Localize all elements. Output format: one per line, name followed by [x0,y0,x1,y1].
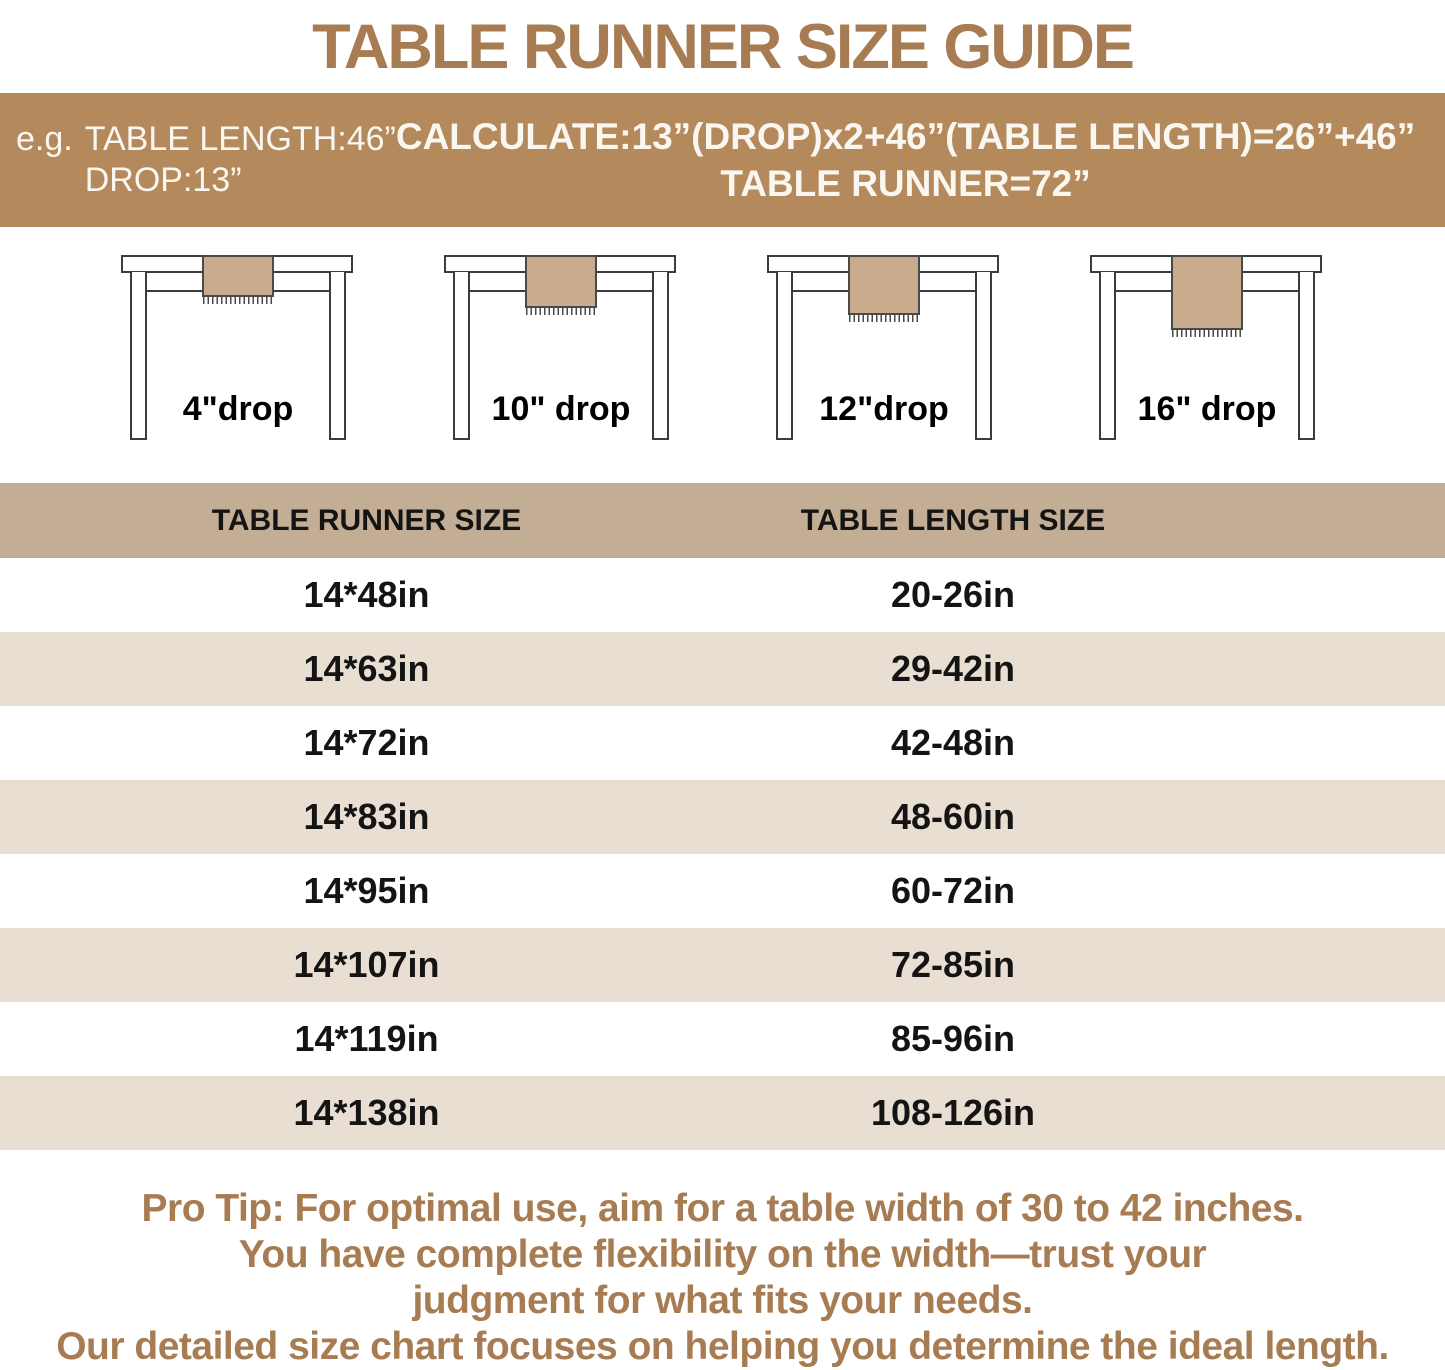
runner-size-cell: 14*83in [0,796,733,838]
table-runner-graphic [202,255,274,297]
pro-tip-line-4: Our detailed size chart focuses on helpi… [0,1324,1445,1370]
example-block: e.g. TABLE LENGTH:46” DROP:13” [16,119,396,201]
column-header-table-length: TABLE LENGTH SIZE [733,504,1173,538]
runner-size-cell: 14*63in [0,648,733,690]
table-runner-graphic [525,255,597,308]
example-table-length: TABLE LENGTH:46” [85,119,396,160]
table-diagram-10in-drop: 10" drop [444,240,678,483]
pro-tip-text: Pro Tip: For optimal use, aim for a tabl… [0,1186,1445,1370]
drop-diagrams: 4"drop 10" drop 12"drop 16" drop [0,240,1445,483]
table-length-cell: 85-96in [733,1018,1173,1060]
pro-tip-line-1: Pro Tip: For optimal use, aim for a tabl… [0,1186,1445,1232]
table-diagram-16in-drop: 16" drop [1090,240,1324,483]
runner-size-cell: 14*107in [0,944,733,986]
table-runner-graphic [1171,255,1243,330]
table-length-cell: 60-72in [733,870,1173,912]
table-length-cell: 108-126in [733,1092,1173,1134]
runner-size-cell: 14*138in [0,1092,733,1134]
table-row: 14*63in 29-42in [0,632,1445,706]
pro-tip-line-2: You have complete flexibility on the wid… [0,1232,1445,1278]
example-drop: DROP:13” [85,160,396,201]
table-row: 14*95in 60-72in [0,854,1445,928]
table-row: 14*72in 42-48in [0,706,1445,780]
table-row: 14*83in 48-60in [0,780,1445,854]
drop-label: 10" drop [404,388,718,430]
table-length-cell: 42-48in [733,722,1173,764]
runner-size-cell: 14*72in [0,722,733,764]
example-prefix: e.g. [16,119,73,160]
drop-label: 12"drop [727,388,1041,430]
drop-label: 4"drop [81,388,395,430]
drop-label: 16" drop [1050,388,1364,430]
calculation-result: TABLE RUNNER=72” [396,160,1415,207]
runner-size-cell: 14*119in [0,1018,733,1060]
table-row: 14*48in 20-26in [0,558,1445,632]
table-row: 14*119in 85-96in [0,1002,1445,1076]
size-chart-rows: 14*48in 20-26in 14*63in 29-42in 14*72in … [0,558,1445,1150]
calculation-block: CALCULATE:13”(DROP)x2+46”(TABLE LENGTH)=… [396,113,1445,207]
calculation-formula: CALCULATE:13”(DROP)x2+46”(TABLE LENGTH)=… [396,113,1415,160]
table-length-cell: 48-60in [733,796,1173,838]
runner-size-cell: 14*48in [0,574,733,616]
size-chart: TABLE RUNNER SIZE TABLE LENGTH SIZE 14*4… [0,483,1445,1150]
table-diagram-12in-drop: 12"drop [767,240,1001,483]
table-row: 14*107in 72-85in [0,928,1445,1002]
runner-size-cell: 14*95in [0,870,733,912]
table-row: 14*138in 108-126in [0,1076,1445,1150]
column-header-runner-size: TABLE RUNNER SIZE [0,504,733,538]
page-title: TABLE RUNNER SIZE GUIDE [0,0,1445,93]
table-length-cell: 72-85in [733,944,1173,986]
table-runner-graphic [848,255,920,315]
pro-tip-line-3: judgment for what fits your needs. [0,1278,1445,1324]
calculation-banner: e.g. TABLE LENGTH:46” DROP:13” CALCULATE… [0,93,1445,227]
size-chart-header: TABLE RUNNER SIZE TABLE LENGTH SIZE [0,483,1445,558]
table-length-cell: 20-26in [733,574,1173,616]
table-length-cell: 29-42in [733,648,1173,690]
example-lines: TABLE LENGTH:46” DROP:13” [85,119,396,201]
table-diagram-4in-drop: 4"drop [121,240,355,483]
